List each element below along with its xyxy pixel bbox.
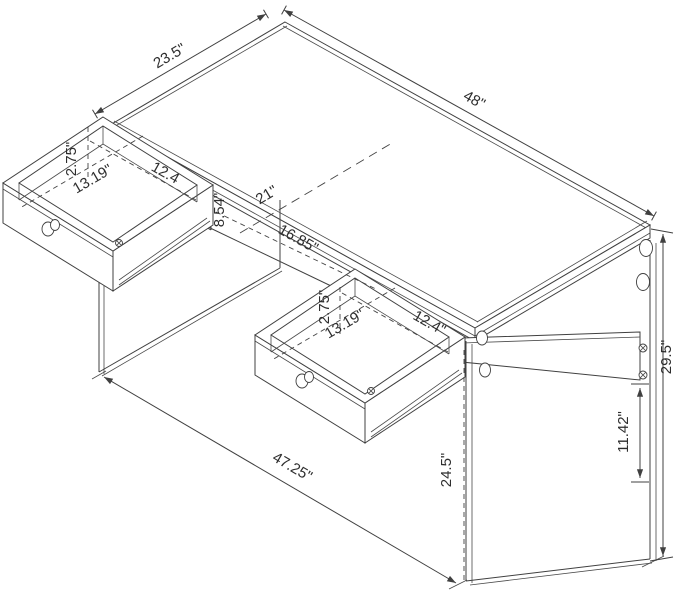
- dim-drawer-back-clearance-label: 8.54": [211, 193, 228, 228]
- dim-left-drawer-height-label: 2.75": [63, 142, 80, 177]
- dim-overall-height-label: 29.5": [658, 340, 675, 375]
- desk-dimension-diagram: 23.5" 48" 29.5" 11.42" 24.5" 47.25" 21" …: [0, 0, 679, 591]
- dim-desktop-depth-label: 23.5": [151, 40, 189, 72]
- dim-desktop-width-label: 48": [460, 87, 488, 113]
- panel-standoff: [477, 331, 488, 345]
- dim-base-width-label: 47.25": [269, 449, 315, 485]
- panel-standoff: [640, 240, 653, 257]
- dim-knee-clearance-height-label: 24.5": [438, 453, 455, 488]
- dim-support-to-floor-label: 11.42": [615, 411, 632, 453]
- left-drawer-knob: [51, 220, 60, 231]
- dim-center-drawer-height-label: 2.75": [316, 290, 333, 325]
- center-drawer-knob: [305, 372, 314, 383]
- diagram-canvas: 23.5" 48" 29.5" 11.42" 24.5" 47.25" 21" …: [0, 0, 679, 591]
- panel-standoff: [637, 274, 650, 291]
- panel-standoff: [480, 363, 491, 377]
